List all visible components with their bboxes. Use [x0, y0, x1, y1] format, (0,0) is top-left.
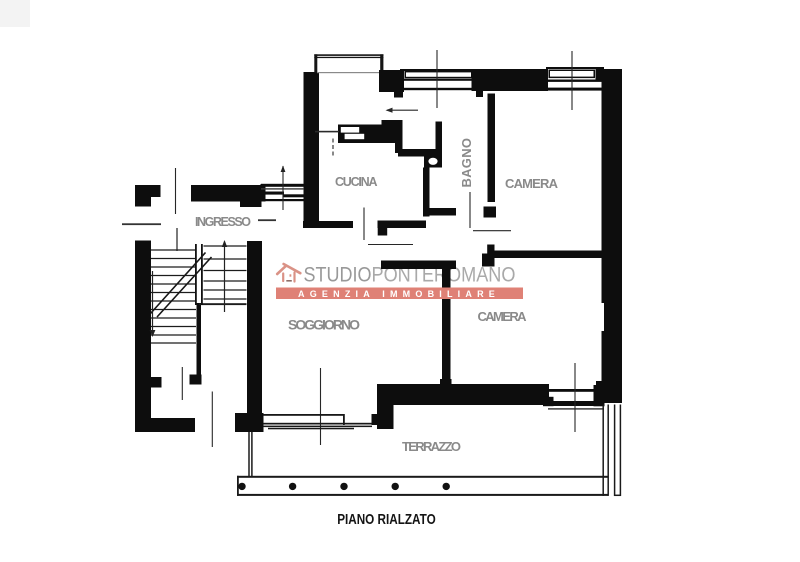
svg-text:INGRESSO: INGRESSO — [195, 215, 251, 229]
svg-text:PIANO RIALZATO: PIANO RIALZATO — [337, 511, 436, 528]
svg-text:SOGGIORNO: SOGGIORNO — [288, 317, 360, 333]
svg-text:CAMERA: CAMERA — [478, 309, 528, 324]
svg-text:CAMERA: CAMERA — [505, 176, 559, 191]
svg-text:CUCINA: CUCINA — [335, 175, 378, 189]
svg-text:STUDIO: STUDIO — [304, 263, 372, 287]
svg-text:AGENZIA IMMOBILIARE: AGENZIA IMMOBILIARE — [298, 289, 500, 299]
svg-text:BAGNO: BAGNO — [459, 138, 474, 188]
svg-text:TERRAZZO: TERRAZZO — [402, 439, 461, 454]
